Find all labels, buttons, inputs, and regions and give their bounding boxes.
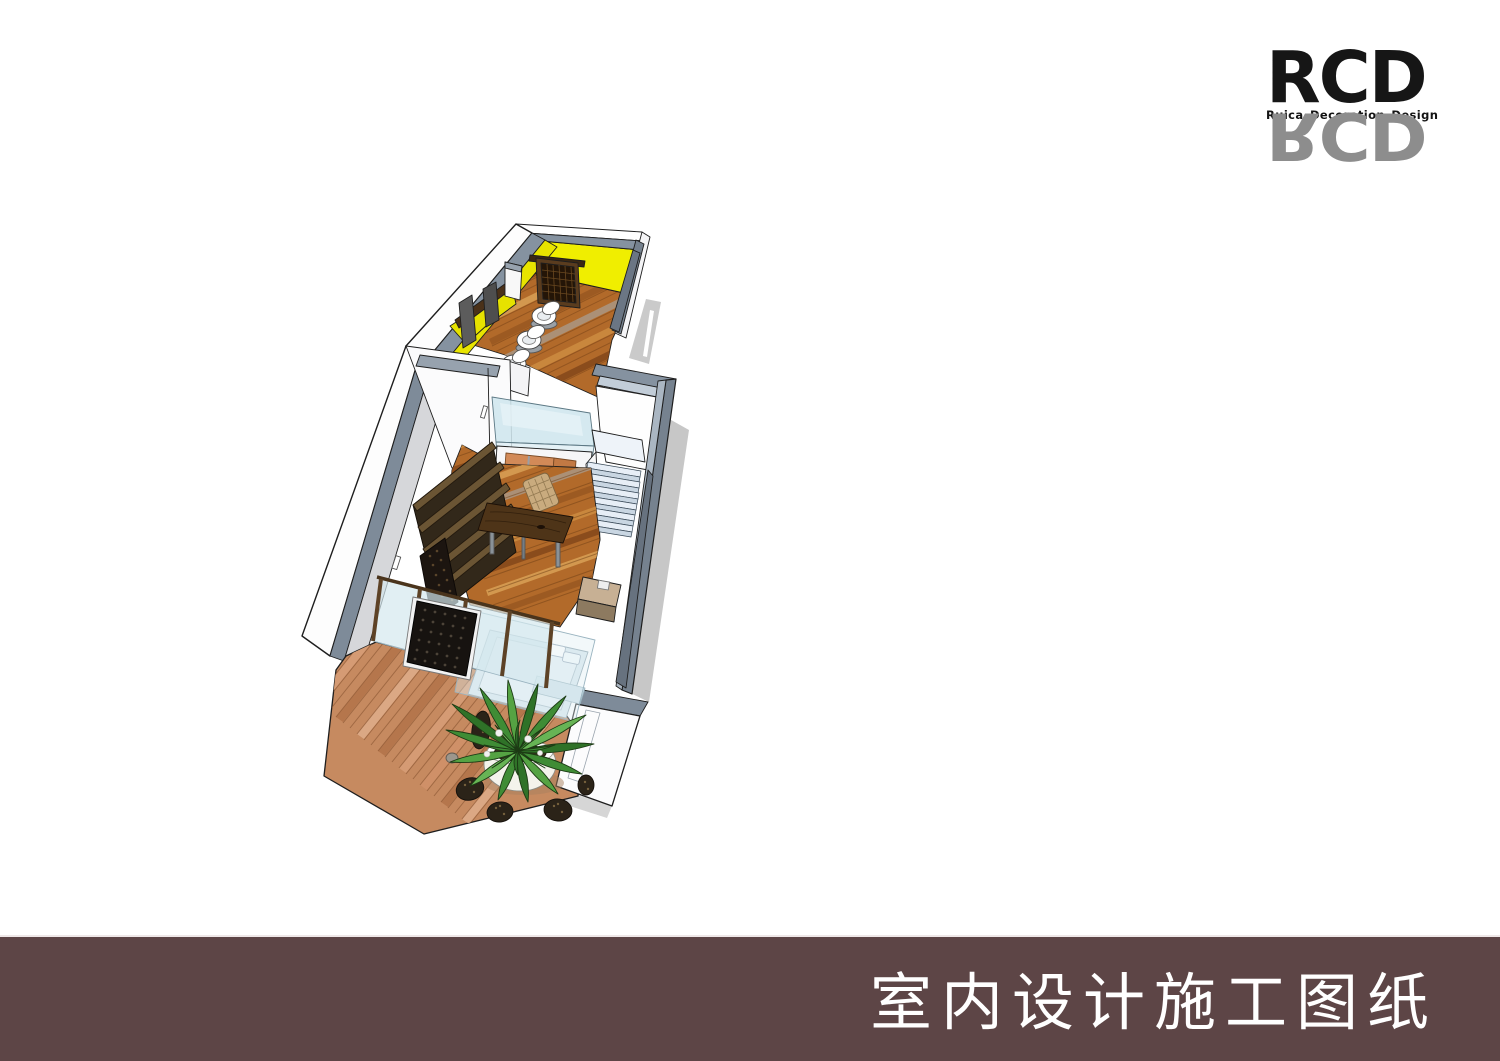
logo-reflection: RCD bbox=[1266, 110, 1438, 161]
leaning-mirror bbox=[483, 282, 499, 327]
page-title: 室内设计施工图纸 bbox=[870, 952, 1438, 1042]
lattice-art-panel bbox=[403, 597, 481, 680]
bench bbox=[576, 577, 621, 622]
title-bar: 室内设计施工图纸 bbox=[0, 935, 1500, 1061]
company-logo: RCD Ruica Decoration Design RCD bbox=[1266, 50, 1438, 179]
presentation-page: RCD Ruica Decoration Design RCD 室内设计施工图纸 bbox=[0, 0, 1500, 1061]
